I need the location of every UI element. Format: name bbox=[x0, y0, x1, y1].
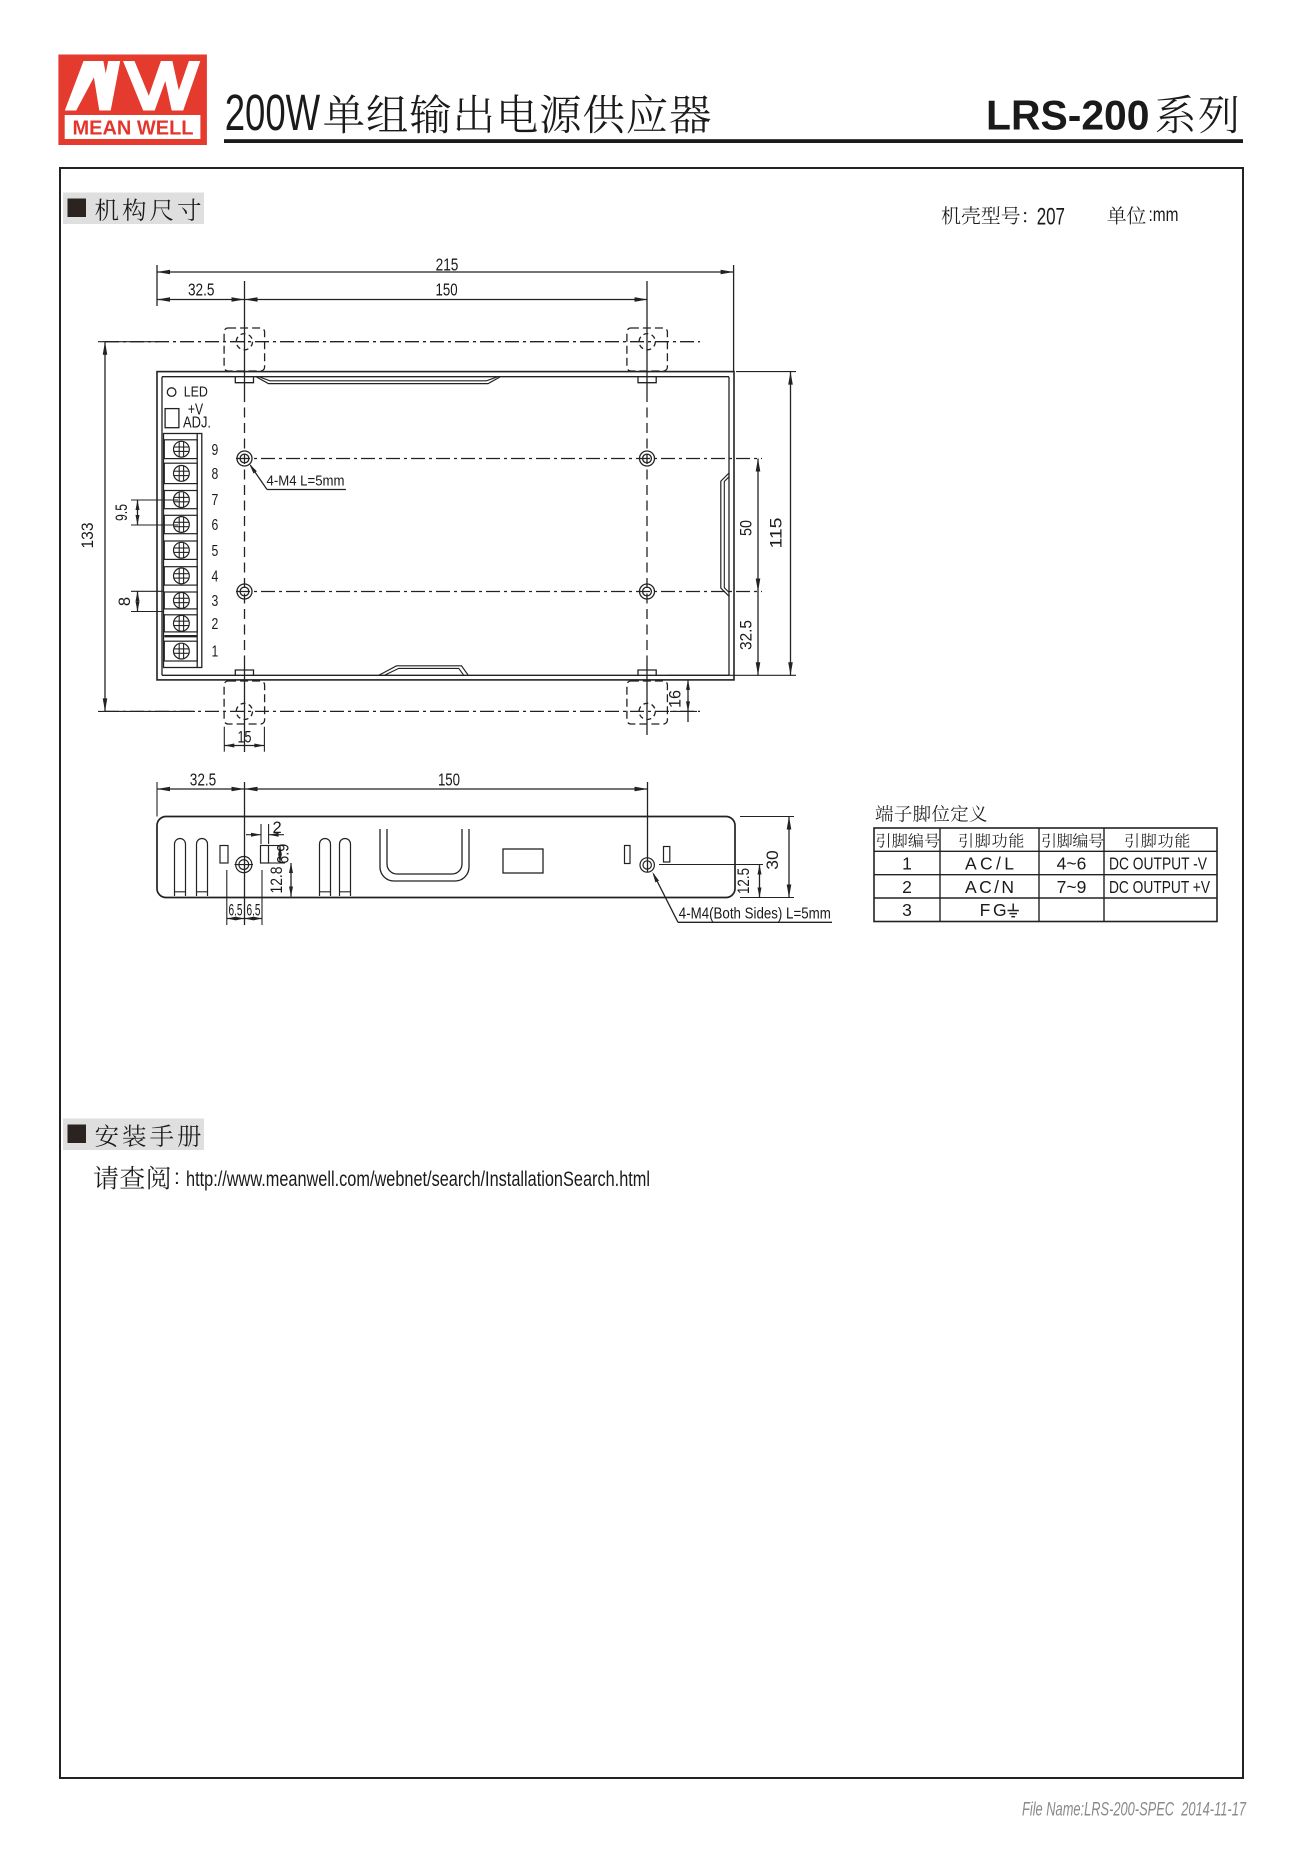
svg-text:150: 150 bbox=[436, 280, 458, 300]
svg-text:4: 4 bbox=[212, 569, 219, 586]
svg-text:4-M4(Both Sides) L=5mm: 4-M4(Both Sides) L=5mm bbox=[679, 906, 831, 923]
svg-text:FG: FG bbox=[980, 900, 1007, 920]
svg-text:3: 3 bbox=[212, 593, 219, 610]
svg-text:32.5: 32.5 bbox=[188, 280, 215, 300]
svg-text:133: 133 bbox=[79, 523, 97, 549]
svg-text::mm: :mm bbox=[1149, 205, 1179, 226]
svg-text:ADJ.: ADJ. bbox=[183, 415, 211, 432]
svg-text:150: 150 bbox=[438, 770, 460, 790]
svg-text:AC/L: AC/L bbox=[965, 854, 1014, 874]
svg-text:6.5: 6.5 bbox=[247, 902, 261, 920]
svg-text:5: 5 bbox=[212, 543, 219, 560]
svg-text:2: 2 bbox=[902, 877, 912, 897]
svg-text:AC/N: AC/N bbox=[965, 877, 1014, 897]
svg-text:File Name:LRS-200-SPEC 2014-1: File Name:LRS-200-SPEC 2014-11-17 bbox=[1022, 1799, 1247, 1821]
svg-text:30: 30 bbox=[764, 850, 782, 870]
svg-text:32.5: 32.5 bbox=[738, 620, 756, 650]
svg-text:8: 8 bbox=[116, 597, 134, 606]
svg-text:16: 16 bbox=[667, 690, 685, 708]
svg-text:2: 2 bbox=[212, 616, 219, 633]
svg-text:115: 115 bbox=[768, 518, 786, 549]
svg-text:LRS-200: LRS-200 bbox=[986, 92, 1150, 139]
svg-text:1: 1 bbox=[902, 854, 912, 874]
svg-text:DC OUTPUT -V: DC OUTPUT -V bbox=[1109, 854, 1207, 874]
svg-text:6.5: 6.5 bbox=[229, 902, 243, 920]
svg-text:4~6: 4~6 bbox=[1057, 854, 1087, 874]
svg-text:9.5: 9.5 bbox=[113, 504, 131, 521]
svg-text:7~9: 7~9 bbox=[1057, 877, 1087, 897]
svg-text:9: 9 bbox=[212, 442, 219, 459]
svg-text:DC OUTPUT +V: DC OUTPUT +V bbox=[1109, 877, 1210, 897]
svg-text:32.5: 32.5 bbox=[190, 770, 217, 790]
svg-text:6.9: 6.9 bbox=[275, 844, 293, 864]
svg-text:3: 3 bbox=[902, 900, 912, 920]
svg-text:215: 215 bbox=[436, 254, 459, 274]
svg-text:4-M4 L=5mm: 4-M4 L=5mm bbox=[267, 474, 345, 490]
svg-text:8: 8 bbox=[212, 466, 219, 483]
svg-text:12.5: 12.5 bbox=[735, 868, 753, 894]
svg-text:7: 7 bbox=[212, 492, 219, 509]
svg-text:200W: 200W bbox=[225, 84, 321, 141]
svg-text:http://www.meanwell.com/webnet: http://www.meanwell.com/webnet/search/In… bbox=[186, 1168, 650, 1191]
svg-text:6: 6 bbox=[212, 517, 219, 534]
svg-text:2: 2 bbox=[273, 819, 282, 837]
svg-text:LED: LED bbox=[184, 385, 208, 401]
svg-text:1: 1 bbox=[212, 644, 219, 661]
svg-text:50: 50 bbox=[738, 520, 756, 536]
svg-text:MEAN WELL: MEAN WELL bbox=[73, 117, 194, 139]
svg-text:12.8: 12.8 bbox=[268, 867, 286, 894]
svg-text:15: 15 bbox=[238, 729, 252, 747]
svg-text:207: 207 bbox=[1037, 204, 1065, 231]
svg-text::: : bbox=[174, 1166, 180, 1189]
